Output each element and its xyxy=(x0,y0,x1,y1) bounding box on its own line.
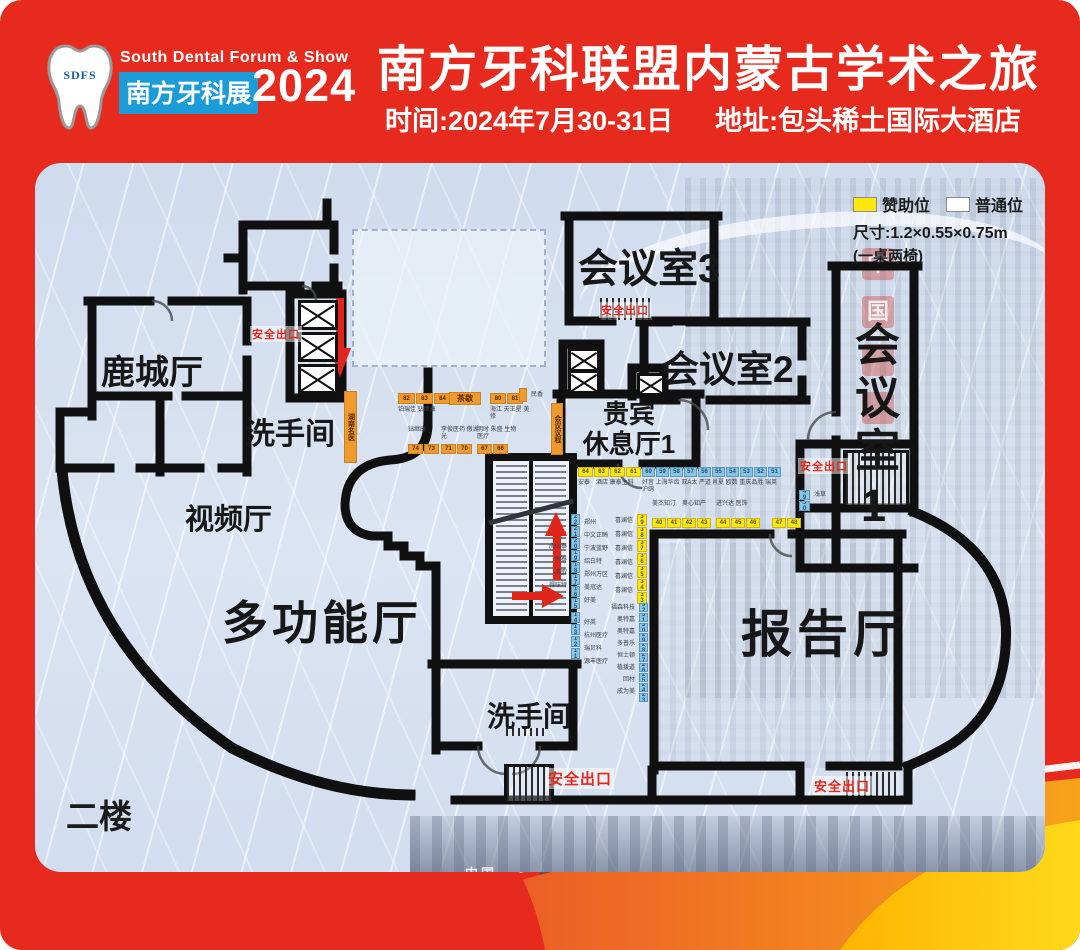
booth-cell: 50 xyxy=(799,501,810,511)
booth-cell: 46 xyxy=(746,518,760,528)
booth-cell: 43 xyxy=(697,518,711,528)
vip-line2: 休息厅1 xyxy=(563,429,695,459)
booth-cell: 66 xyxy=(493,444,508,454)
booth-label: 进兴达 医饰 xyxy=(716,501,761,508)
room-label-meeting1: 会议室1 xyxy=(841,321,906,539)
booth-label: 浅草 xyxy=(814,492,826,499)
regular-swatch xyxy=(946,197,970,212)
booth-cell xyxy=(519,388,527,402)
booth-cell: 58 xyxy=(670,467,683,477)
room-label-multifunction: 多功能厅 xyxy=(222,587,422,653)
booth-label: 瑞贝科 xyxy=(584,646,602,653)
booth-label: 民香 xyxy=(531,392,543,399)
booth-cell: 52 xyxy=(754,467,767,477)
room-label-vip: 贵宾 休息厅1 xyxy=(563,399,695,459)
booth-label: 福森科技 xyxy=(611,605,635,612)
booth-cell: 湖南名医 xyxy=(344,391,357,463)
booth-label: 成取 xyxy=(555,570,567,577)
elevator-icon xyxy=(298,364,338,394)
booth-cell: 53 xyxy=(740,467,753,477)
booth-cell: 71 xyxy=(441,444,456,454)
room-label-restroom-top: 洗手间 xyxy=(245,409,335,453)
booth-cell: 56 xyxy=(698,467,711,477)
booth-label: 李俊医药 傲湖光 xyxy=(441,427,481,441)
safety-exit-marker: 安全出口 xyxy=(250,326,302,342)
room-label-meeting3: 会议室3 xyxy=(578,236,720,294)
logo-chinese-tag: 南方牙科展 xyxy=(119,72,258,114)
header: SDFS South Dental Forum & Show 南方牙科展 202… xyxy=(0,0,1080,163)
booth-cell: 38 xyxy=(637,527,647,539)
booth-cell: 14 xyxy=(571,612,580,623)
booth-cell: 54 xyxy=(726,467,739,477)
logo-year: 2024 xyxy=(252,60,356,112)
booth-label: 美冠达 xyxy=(584,585,602,592)
booth-cell: 32 xyxy=(639,603,648,612)
booth-cell: 47 xyxy=(772,518,786,528)
legend: 赞助位 普通位 尺寸:1.2×0.55×0.75m (一桌两椅) xyxy=(853,192,1023,266)
booth-cell: 13 xyxy=(571,624,580,635)
legend-note: (一桌两椅) xyxy=(853,245,1023,266)
booth-cell: 26 xyxy=(639,663,648,672)
room-label-meeting2: 会议室2 xyxy=(662,339,794,393)
booth-cell: 83 xyxy=(416,393,433,404)
page-title: 南方牙科联盟内蒙古学术之旅 xyxy=(377,30,1072,101)
booth-cell: 21 xyxy=(571,526,580,537)
booth-label: 郑州万区 xyxy=(584,572,608,579)
booth-label: 郑州 xyxy=(584,520,596,527)
booth-cell: 42 xyxy=(682,518,696,528)
room-label-lecture: 报告厅 xyxy=(741,593,909,667)
booth-label: 明时 朱盛 生物医疗 xyxy=(477,427,517,441)
booth-cell: 22 xyxy=(571,514,580,525)
booth-cell: 70 xyxy=(457,444,472,454)
floorplan-panel: 中 国 中国── xyxy=(35,163,1045,872)
poster-card: SDFS South Dental Forum & Show 南方牙科展 202… xyxy=(0,0,1080,950)
booth-label: 好英 xyxy=(584,620,596,627)
booth-label: 源丰医疗 xyxy=(584,659,608,666)
booth-cell: 31 xyxy=(639,613,648,622)
booth-cell: 12 xyxy=(571,636,580,647)
booth-label: 成为美 xyxy=(617,689,635,696)
booth-cell: 30 xyxy=(639,623,648,632)
booth-label: 喜澜信 xyxy=(615,532,633,539)
booth-cell: 64 xyxy=(578,467,593,477)
booth-label: 恒泰 xyxy=(555,557,567,564)
booth-cell: 41 xyxy=(667,518,681,528)
booth-label: 喜澜信 xyxy=(615,546,633,553)
booth-label: 喜澜信 xyxy=(615,560,633,567)
elevator-icon xyxy=(568,370,600,394)
booth-label: 喜澜信 xyxy=(615,574,633,581)
booth-label: 恒士顿 xyxy=(617,653,635,660)
booth-label: 植援道 xyxy=(617,665,635,672)
floor-label: 二楼 xyxy=(66,790,132,838)
room-label-lucheng: 鹿城厅 xyxy=(101,345,203,394)
safety-exit-marker: 安全出口 xyxy=(798,458,850,474)
legend-regular-label: 普通位 xyxy=(975,192,1023,216)
event-info: 时间:2024年7月30-31日地址:包头稀土国际大酒店 xyxy=(385,99,1063,138)
booth-label: 奥特嘉 xyxy=(617,629,635,636)
booth-cell: 39 xyxy=(637,514,647,526)
booth-cell: 29 xyxy=(639,633,648,642)
booth-cell: 49 xyxy=(799,490,810,500)
booth-cell: 27 xyxy=(639,653,648,662)
booth-cell: 55 xyxy=(712,467,725,477)
booth-label: 好音 上海华齿 双A太 严道 沪鸽 xyxy=(642,480,712,494)
event-address: 地址:包头稀土国际大酒店 xyxy=(715,106,1021,136)
booth-label: 奥特嘉 xyxy=(617,617,635,624)
booth-cell: 74 xyxy=(408,444,423,454)
room-label-restroom-bottom: 洗手间 xyxy=(487,695,571,735)
booth-cell: 茶歇 xyxy=(449,392,481,405)
booth-cell: 36 xyxy=(637,553,647,565)
booth-label: 绍白特 xyxy=(584,559,602,566)
booth-label: 喜澜信 xyxy=(615,518,633,525)
booth-cell: 34 xyxy=(637,579,647,591)
booth-cell: 18 xyxy=(571,562,580,573)
booth-cell: 37 xyxy=(637,540,647,552)
booth-cell: 45 xyxy=(731,518,745,528)
booth-label: 虎山泰 xyxy=(549,544,567,551)
safety-exit-marker: 安全出口 xyxy=(546,768,614,789)
booth-label: 铂瑞佳 钻继康 xyxy=(398,407,452,414)
booth-label: 安泰 酒店 康泰主科 xyxy=(578,480,642,487)
booth-cell: 61 xyxy=(626,467,641,477)
safety-exit-marker: 安全出口 xyxy=(812,776,872,795)
booth-cell: 82 xyxy=(398,393,415,404)
booth-cell: 63 xyxy=(594,467,609,477)
booth-cell: 17 xyxy=(571,574,580,585)
vip-line1: 贵宾 xyxy=(563,399,695,429)
event-time: 时间:2024年7月30-31日 xyxy=(385,106,673,136)
booth-cell: 48 xyxy=(787,518,801,528)
elevator-icon xyxy=(298,332,338,362)
booth-cell: 20 xyxy=(571,538,580,549)
elevator-icon xyxy=(637,373,665,396)
booth-cell: 25 xyxy=(639,673,648,682)
elevator-icon xyxy=(568,348,600,372)
booth-label: 得味特 xyxy=(549,583,567,590)
booth-cell: 23 xyxy=(639,693,648,702)
booth-label: 喜澜信 xyxy=(615,588,633,595)
sponsor-swatch xyxy=(853,197,877,212)
elevator-icon xyxy=(298,300,338,330)
booth-cell: 会议议程 xyxy=(551,403,563,455)
booth-cell: 51 xyxy=(768,467,781,477)
booth-label: 杭州医疗 xyxy=(584,633,608,640)
booth-label: 美杰知汀 奥心知产 xyxy=(652,501,712,508)
booth-cell: 44 xyxy=(716,518,730,528)
booth-label: 多普乐 xyxy=(617,641,635,648)
booth-cell: 40 xyxy=(652,518,666,528)
booth-label: 好美 xyxy=(584,598,596,605)
booth-cell: 67 xyxy=(477,444,492,454)
booth-cell: 73 xyxy=(424,444,439,454)
safety-exit-marker: 安全出口 xyxy=(599,302,651,318)
logo-acronym: SDFS xyxy=(63,68,96,83)
booth-cell: 35 xyxy=(637,566,647,578)
booth-label: 宁波蓝野 xyxy=(584,546,608,553)
booth-cell: 80 xyxy=(490,393,506,404)
booth-cell: 11 xyxy=(571,648,580,659)
booth-cell: 16 xyxy=(571,586,580,597)
booth-cell: 57 xyxy=(684,467,697,477)
booth-cell: 60 xyxy=(642,467,655,477)
booth-cell: 19 xyxy=(571,550,580,561)
booth-label: 肖夏 欧数 重庆品胜 瑞英 xyxy=(712,480,782,487)
legend-size: 尺寸:1.2×0.55×0.75m xyxy=(853,219,1023,243)
booth-label: 回材 xyxy=(623,677,635,684)
booth-cell: 62 xyxy=(610,467,625,477)
room-label-video: 视频厅 xyxy=(185,496,272,538)
legend-sponsor-label: 赞助位 xyxy=(882,192,930,216)
booth-cell: 15 xyxy=(571,598,580,609)
booth-label: 中文正畸 xyxy=(584,533,608,540)
booth-cell: 59 xyxy=(656,467,669,477)
booth-cell: 28 xyxy=(639,643,648,652)
booth-label: 海江 天王星 美修 xyxy=(490,407,530,421)
tooth-logo-icon: SDFS xyxy=(46,44,114,130)
booth-cell: 24 xyxy=(639,683,648,692)
